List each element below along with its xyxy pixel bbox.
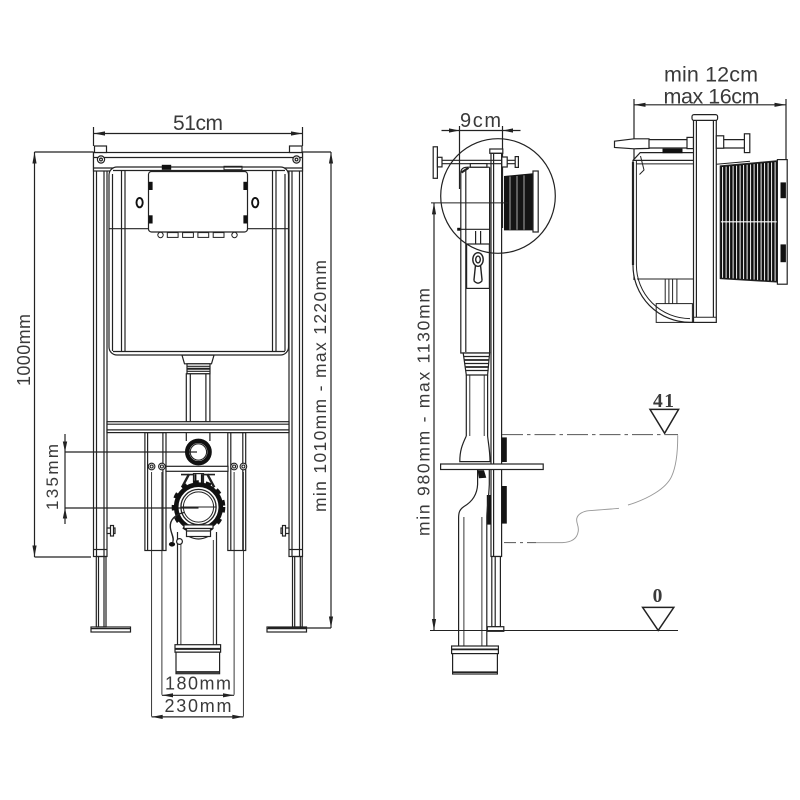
svg-text:51cm: 51cm xyxy=(173,112,223,135)
svg-text:1000mm: 1000mm xyxy=(14,314,34,386)
svg-text:min 1010mm - max 1220mm: min 1010mm - max 1220mm xyxy=(310,260,330,512)
svg-text:180mm: 180mm xyxy=(165,674,231,694)
svg-text:0: 0 xyxy=(653,586,663,607)
svg-text:9cm: 9cm xyxy=(460,110,501,132)
svg-text:min 980mm - max 1130mm: min 980mm - max 1130mm xyxy=(414,288,434,536)
svg-text:min 12cm: min 12cm xyxy=(664,63,758,87)
